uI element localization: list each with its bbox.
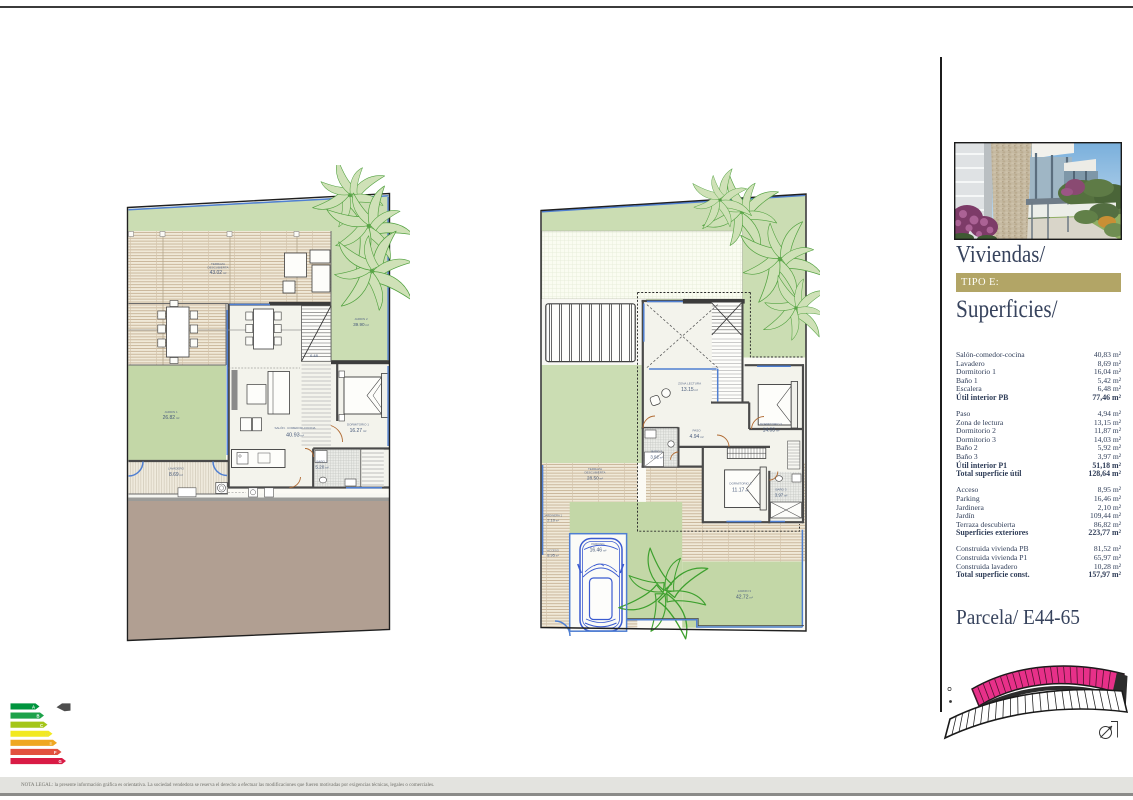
svg-text:BAÑO 2: BAÑO 2 <box>651 449 662 454</box>
svg-text:PASO: PASO <box>693 429 702 433</box>
svg-text:JARDIN 2: JARDIN 2 <box>354 317 368 321</box>
svg-text:DORMITORIO 3: DORMITORIO 3 <box>760 422 782 426</box>
svg-text:3.97 m²: 3.97 m² <box>775 493 788 498</box>
svg-text:F: F <box>54 750 57 755</box>
svg-text:JARDIN 3: JARDIN 3 <box>738 589 752 593</box>
svg-text:SALÓN . COMEDOR-COCINA: SALÓN . COMEDOR-COCINA <box>274 425 315 430</box>
svg-text:B: B <box>37 714 40 719</box>
svg-text:G: G <box>59 759 62 764</box>
svg-text:DORMITORIO 2: DORMITORIO 2 <box>729 482 751 486</box>
svg-text:E: E <box>50 741 53 746</box>
svg-text:C: C <box>40 723 43 728</box>
svg-text:ZONA LECTURA: ZONA LECTURA <box>678 382 701 386</box>
svg-text:DORMITORIO 1: DORMITORIO 1 <box>347 423 369 427</box>
svg-text:3.92 m²: 3.92 m² <box>650 455 663 460</box>
svg-text:DESCUBIERTA: DESCUBIERTA <box>584 470 605 474</box>
svg-text:JARDIN 1: JARDIN 1 <box>164 410 178 414</box>
svg-text:BAÑO 1: BAÑO 1 <box>316 459 327 464</box>
svg-text:DESCUBIERTA: DESCUBIERTA <box>207 265 228 269</box>
svg-text:BAÑO 3: BAÑO 3 <box>775 487 786 492</box>
svg-text:39.90 m²: 39.90 m² <box>353 322 369 327</box>
svg-text:5.20 m²: 5.20 m² <box>315 465 328 470</box>
svg-text:A: A <box>32 705 35 710</box>
svg-text:6.48: 6.48 <box>310 353 319 358</box>
svg-text:D: D <box>45 732 48 737</box>
svg-text:PARKING: PARKING <box>591 542 605 546</box>
svg-text:LAVADERO: LAVADERO <box>168 467 185 471</box>
